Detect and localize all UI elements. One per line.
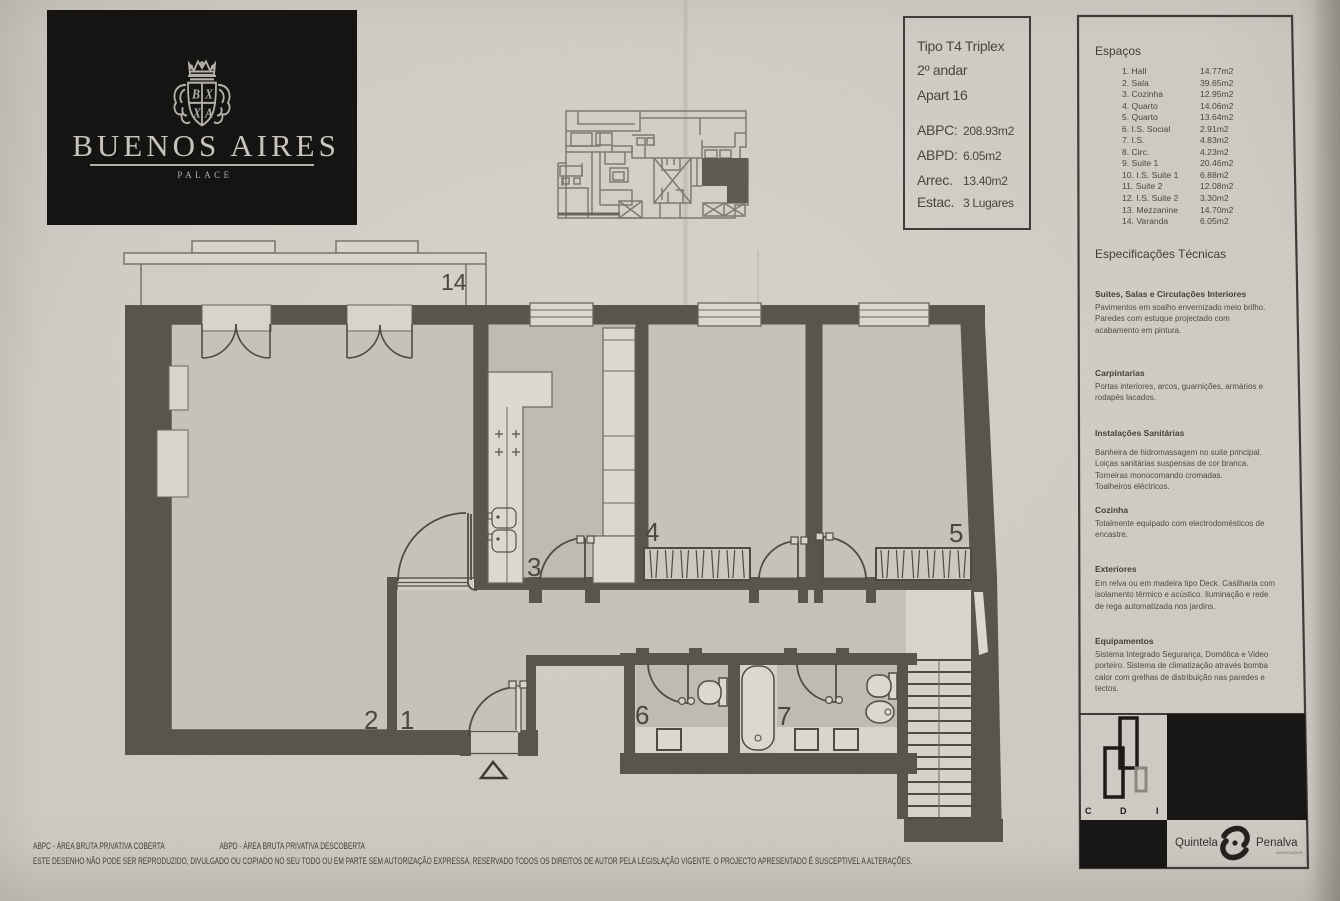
svg-text:14: 14 — [441, 269, 467, 295]
svg-text:5: 5 — [949, 518, 963, 548]
svg-text:X: X — [192, 106, 201, 121]
svg-text:I: I — [1156, 806, 1159, 816]
svg-text:C: C — [1085, 806, 1092, 816]
svg-text:A: A — [204, 106, 213, 121]
svg-text:7: 7 — [777, 701, 791, 731]
svg-text:X: X — [204, 87, 213, 102]
svg-text:3: 3 — [527, 552, 541, 582]
svg-text:4: 4 — [645, 517, 659, 547]
svg-text:2: 2 — [364, 705, 378, 735]
svg-text:B: B — [191, 87, 200, 102]
svg-text:D: D — [1120, 806, 1127, 816]
svg-text:6: 6 — [635, 700, 649, 730]
svg-text:1: 1 — [400, 705, 414, 735]
